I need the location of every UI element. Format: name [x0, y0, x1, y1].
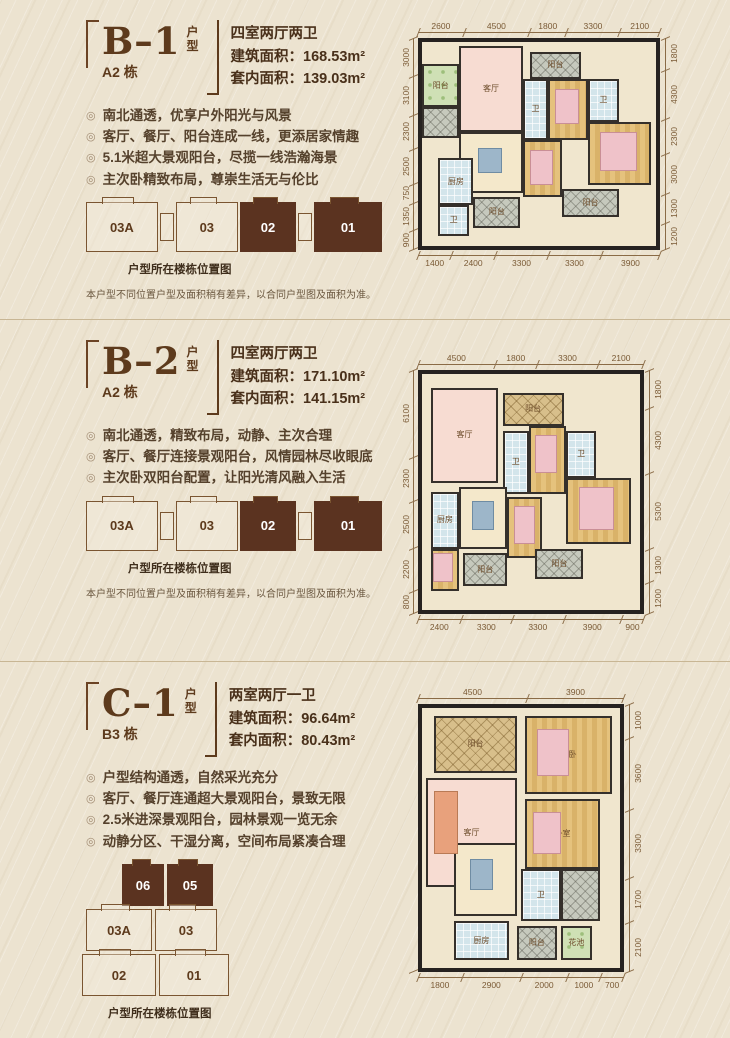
room: [555, 89, 578, 124]
room: 厨房: [454, 921, 509, 960]
unit-block-03: 03: [155, 909, 217, 951]
dimension-value: 3300: [495, 256, 548, 272]
dimension-value: 2900: [462, 978, 521, 994]
dimension-value: 2100: [598, 350, 644, 364]
dimensions-right: 180043002300300013001200: [665, 38, 681, 250]
floor-plan-b2: 客厅阳台卫卧室卫主卧餐厅厨房卧室卧室阳台阳台: [418, 370, 644, 614]
unit-block-02-active: 02: [240, 202, 296, 252]
room-label: 阳台: [467, 740, 483, 748]
building-position-diagram: 06 05 03A 03 02 01: [86, 864, 382, 996]
room: 卫: [521, 869, 561, 921]
title-block: B–2 户 型 A2 栋 四室两厅两卫 建筑面积：171.10m² 套内面积：1…: [86, 340, 382, 415]
dimension-value: 3000: [398, 38, 413, 76]
room-label: 阳台: [477, 566, 493, 574]
ring-bullet-icon: ◎: [86, 792, 96, 806]
diagram-caption: 户型所在楼栋位置图: [128, 560, 382, 576]
ring-bullet-icon: ◎: [86, 130, 96, 144]
dimension-value: 2100: [630, 922, 645, 972]
room-label: 厨房: [473, 937, 489, 945]
dimension-value: 4300: [666, 70, 681, 119]
ring-bullet-icon: ◎: [86, 109, 96, 123]
unit-connector: [298, 213, 312, 241]
dimension-value: 2000: [521, 978, 568, 994]
room: [530, 150, 553, 185]
diagram-caption: 户型所在楼栋位置图: [128, 261, 382, 277]
dimensions-top: 26004500180033002100: [418, 18, 660, 33]
room-label: 卫: [450, 216, 458, 224]
building-label: A2 栋: [102, 62, 199, 82]
room-label: 客厅: [483, 85, 499, 93]
unit-type-suffix: 户 型: [187, 346, 199, 374]
dimension-value: 3900: [564, 620, 621, 636]
floor-plan-area: 45003900 阳台主卧客厅卧室餐厅卫厨房阳台花池 1000360033001…: [382, 684, 644, 1038]
room: 客厅: [459, 46, 522, 132]
unit-type-suffix: 户 型: [185, 688, 197, 716]
title-bracket: C–1 户 型 B3 栋: [86, 682, 213, 752]
built-area: 建筑面积：168.53m²: [231, 46, 366, 68]
dimension-value: 1800: [666, 38, 681, 70]
room-label: 卫: [599, 96, 607, 104]
dimension-value: 2500: [398, 149, 413, 184]
building-label: B3 栋: [102, 724, 197, 744]
room: [579, 487, 614, 529]
dimension-value: 2600: [418, 18, 464, 32]
dimension-value: 2400: [451, 256, 495, 272]
building-position-diagram: 03A 03 02 01: [86, 202, 382, 252]
built-area: 建筑面积：171.10m²: [231, 366, 366, 388]
dimension-value: 3300: [461, 620, 512, 636]
ring-bullet-icon: ◎: [86, 173, 96, 187]
room: 卫: [503, 431, 529, 495]
feature-item: ◎主次卧双阳台配置，让阳光清风融入生活: [86, 469, 382, 486]
feature-item: ◎南北通透，精致布局，动静、主次合理: [86, 427, 382, 444]
ring-bullet-icon: ◎: [86, 835, 96, 849]
dimension-value: 2300: [666, 119, 681, 154]
room-label: 卫: [577, 450, 585, 458]
room-label: 客厅: [463, 829, 479, 837]
dimension-value: 1800: [529, 18, 566, 32]
room-label: 花池: [568, 939, 584, 947]
feature-item: ◎5.1米超大景观阳台，尽揽一线浩瀚海景: [86, 149, 382, 166]
floor-plan-c1: 阳台主卧客厅卧室餐厅卫厨房阳台花池: [418, 704, 624, 972]
room-spec: 四室两厅两卫: [231, 342, 366, 363]
room: [533, 812, 561, 854]
inner-area: 套内面积：139.03m²: [231, 68, 366, 90]
section-c1-info: C–1 户 型 B3 栋 两室两厅一卫 建筑面积：96.64m² 套内面积：80…: [86, 682, 382, 1038]
inner-area: 套内面积：141.15m²: [231, 388, 366, 410]
dimensions-bottom: 14002400330033003900: [418, 255, 660, 272]
dimensions-right: 18004300530013001200: [649, 370, 665, 614]
room: 厨房: [438, 158, 473, 205]
unit-connector: [160, 512, 174, 540]
room: 卫: [566, 431, 597, 478]
dimension-value: 900: [621, 620, 644, 636]
section-b2: B–2 户 型 A2 栋 四室两厅两卫 建筑面积：171.10m² 套内面积：1…: [0, 320, 730, 662]
room-label: 阳台: [547, 61, 563, 69]
dimension-value: 4500: [418, 684, 527, 698]
dimension-value: 750: [398, 184, 413, 203]
unit-block-03a: 03A: [86, 909, 152, 951]
room: [478, 148, 501, 172]
room-label: 阳台: [433, 82, 449, 90]
room: 客厅: [431, 388, 499, 482]
room: 厨房: [431, 492, 459, 549]
room-label: 阳台: [551, 560, 567, 568]
feature-item: ◎南北通透，优享户外阳光与风景: [86, 107, 382, 124]
dimension-value: 4300: [650, 408, 665, 473]
dimension-value: 1200: [650, 582, 665, 614]
room: 阳台: [535, 549, 583, 580]
dimensions-left: 6100230025002200800: [398, 370, 414, 614]
dimensions-top: 4500180033002100: [418, 350, 644, 365]
building-label: A2 栋: [102, 382, 199, 402]
dimension-value: 1000: [630, 704, 645, 738]
feature-item: ◎主次卧精致布局，尊崇生活无与伦比: [86, 171, 382, 188]
room-label: 阳台: [529, 939, 545, 947]
dimension-value: 2100: [619, 18, 660, 32]
feature-item: ◎动静分区、干湿分离，空间布局紧凑合理: [86, 833, 382, 850]
dimension-value: 2300: [398, 115, 413, 149]
room: [434, 791, 458, 853]
room: 阳台: [434, 716, 517, 773]
room-label: 阳台: [525, 405, 541, 413]
dimension-value: 4500: [418, 350, 495, 364]
dimension-value: 1300: [650, 549, 665, 582]
feature-item: ◎客厅、餐厅连接景观阳台，风情园林尽收眼底: [86, 448, 382, 465]
unit-type-suffix: 户 型: [187, 26, 199, 54]
unit-block-01-active: 01: [314, 202, 382, 252]
dimension-value: 3300: [537, 350, 598, 364]
ring-bullet-icon: ◎: [86, 151, 96, 165]
title-bracket: B–2 户 型 A2 栋: [86, 340, 215, 410]
unit-connector: [298, 512, 312, 540]
dimension-value: 3600: [630, 738, 645, 810]
bracket-corner-icon: [86, 682, 99, 730]
building-position-diagram: 03A 03 02 01: [86, 501, 382, 551]
dimension-value: 1000: [567, 978, 600, 994]
title-block: C–1 户 型 B3 栋 两室两厅一卫 建筑面积：96.64m² 套内面积：80…: [86, 682, 382, 757]
dimension-value: 3300: [566, 18, 619, 32]
dimension-value: 700: [600, 978, 624, 994]
dimension-value: 1800: [495, 350, 537, 364]
dimension-value: 2300: [398, 457, 413, 501]
room: [600, 132, 637, 171]
unit-block-06-active: 06: [122, 864, 164, 906]
room: 阳台: [503, 393, 564, 426]
unit-type-title: B–1: [102, 24, 181, 59]
dimensions-left: 30003100230025007501350900: [398, 38, 414, 250]
section-c1: C–1 户 型 B3 栋 两室两厅一卫 建筑面积：96.64m² 套内面积：80…: [0, 662, 730, 1038]
room-label: 厨房: [448, 178, 464, 186]
dimension-value: 1700: [630, 878, 645, 922]
spec-block: 四室两厅两卫 建筑面积：168.53m² 套内面积：139.03m²: [217, 20, 366, 95]
bracket-corner-icon: [86, 340, 99, 388]
room: 卫: [438, 205, 468, 236]
dimension-value: 1350: [398, 203, 413, 231]
room-label: 阳台: [489, 208, 505, 216]
room-label: 客厅: [457, 431, 473, 439]
room: [535, 435, 557, 473]
dimension-value: 2500: [398, 501, 413, 548]
unit-block-01: 01: [159, 954, 229, 996]
bracket-corner-icon: [86, 20, 99, 68]
room-label: 卫: [537, 891, 545, 899]
floor-plan-b1: 阳台客厅阳台卫卧室卫主卧餐厅厨房卫卧室阳台阳台: [418, 38, 660, 250]
unit-block-03a: 03A: [86, 501, 158, 551]
feature-item: ◎户型结构通透，自然采光充分: [86, 769, 382, 786]
section-b2-info: B–2 户 型 A2 栋 四室两厅两卫 建筑面积：171.10m² 套内面积：1…: [86, 340, 382, 661]
room: [472, 501, 494, 529]
unit-block-03a: 03A: [86, 202, 158, 252]
title-bracket: B–1 户 型 A2 栋: [86, 20, 215, 90]
dimensions-bottom: 1800290020001000700: [418, 977, 624, 994]
dimension-value: 6100: [398, 370, 413, 457]
disclaimer-note: 本户型不同位置户型及面积稍有差异，以合同户型图及面积为准。: [86, 286, 382, 301]
room: [561, 869, 601, 921]
room: 花池: [561, 926, 593, 960]
dimensions-bottom: 2400330033003900900: [418, 619, 644, 636]
unit-type-title: B–2: [102, 344, 181, 379]
unit-block-02: 02: [82, 954, 156, 996]
dimension-value: 3900: [601, 256, 660, 272]
feature-list: ◎南北通透，精致布局，动静、主次合理 ◎客厅、餐厅连接景观阳台，风情园林尽收眼底…: [86, 427, 382, 487]
unit-block-03: 03: [176, 202, 238, 252]
position-diagram-block: 03A 03 02 01 户型所在楼栋位置图 本户型不同位置户型及面积稍有差异，…: [86, 501, 382, 600]
dimension-value: 1300: [666, 194, 681, 222]
dimension-value: 800: [398, 591, 413, 614]
dimensions-top: 45003900: [418, 684, 624, 699]
feature-list: ◎户型结构通透，自然采光充分 ◎客厅、餐厅连通超大景观阳台，景致无限 ◎2.5米…: [86, 769, 382, 850]
room: 阳台: [562, 189, 618, 218]
dimension-value: 3300: [512, 620, 563, 636]
dimension-value: 1800: [418, 978, 462, 994]
dimension-value: 2400: [418, 620, 461, 636]
dimension-value: 3900: [527, 684, 624, 698]
floor-plan-area: 4500180033002100 6100230025002200800 客厅阳…: [382, 350, 664, 661]
room: 卫: [588, 79, 618, 122]
room-spec: 两室两厅一卫: [229, 684, 356, 705]
unit-block-01-active: 01: [314, 501, 382, 551]
ring-bullet-icon: ◎: [86, 813, 96, 827]
room: 阳台: [530, 52, 581, 79]
spec-block: 两室两厅一卫 建筑面积：96.64m² 套内面积：80.43m²: [215, 682, 356, 757]
title-block: B–1 户 型 A2 栋 四室两厅两卫 建筑面积：168.53m² 套内面积：1…: [86, 20, 382, 95]
dimension-value: 1400: [418, 256, 451, 272]
built-area: 建筑面积：96.64m²: [229, 708, 356, 730]
unit-connector: [160, 213, 174, 241]
dimension-value: 3000: [666, 154, 681, 194]
inner-area: 套内面积：80.43m²: [229, 730, 356, 752]
room-label: 卫: [531, 105, 539, 113]
spec-block: 四室两厅两卫 建筑面积：171.10m² 套内面积：141.15m²: [217, 340, 366, 415]
dimension-value: 1800: [650, 370, 665, 408]
feature-item: ◎客厅、餐厅、阳台连成一线，更添居家情趣: [86, 128, 382, 145]
room-label: 卫: [512, 458, 520, 466]
dimensions-right: 10003600330017002100: [629, 704, 645, 972]
room: 阳台: [463, 553, 507, 586]
dimension-value: 1200: [666, 223, 681, 250]
dimensions-left-empty: [398, 704, 413, 972]
room: 阳台: [473, 197, 520, 228]
ring-bullet-icon: ◎: [86, 471, 96, 485]
room: 阳台: [517, 926, 557, 960]
room-label: 厨房: [437, 516, 453, 524]
ring-bullet-icon: ◎: [86, 771, 96, 785]
feature-item: ◎2.5米进深景观阳台，园林景观一览无余: [86, 811, 382, 828]
disclaimer-note: 本户型不同位置户型及面积稍有差异，以合同户型图及面积为准。: [86, 585, 382, 600]
section-b1: B–1 户 型 A2 栋 四室两厅两卫 建筑面积：168.53m² 套内面积：1…: [0, 0, 730, 320]
position-diagram-block: 03A 03 02 01 户型所在楼栋位置图 本户型不同位置户型及面积稍有差异，…: [86, 202, 382, 301]
dimension-value: 2200: [398, 548, 413, 591]
room: 卫: [523, 79, 549, 140]
section-b1-info: B–1 户 型 A2 栋 四室两厅两卫 建筑面积：168.53m² 套内面积：1…: [86, 20, 382, 319]
dimension-value: 3100: [398, 76, 413, 115]
room: [470, 859, 494, 890]
unit-block-03: 03: [176, 501, 238, 551]
room-spec: 四室两厅两卫: [231, 22, 366, 43]
room: [433, 553, 453, 581]
unit-type-title: C–1: [102, 686, 179, 721]
room-label: 阳台: [582, 199, 598, 207]
dimension-value: 900: [398, 230, 413, 250]
feature-list: ◎南北通透，优享户外阳光与风景 ◎客厅、餐厅、阳台连成一线，更添居家情趣 ◎5.…: [86, 107, 382, 188]
feature-item: ◎客厅、餐厅连通超大景观阳台，景致无限: [86, 790, 382, 807]
unit-block-05-active: 05: [167, 864, 213, 906]
dimension-value: 4500: [464, 18, 529, 32]
ring-bullet-icon: ◎: [86, 429, 96, 443]
ring-bullet-icon: ◎: [86, 450, 96, 464]
unit-block-02-active: 02: [240, 501, 296, 551]
floor-plan-area: 26004500180033002100 3000310023002500750…: [382, 18, 680, 319]
room: 阳台: [422, 64, 459, 107]
dimension-value: 3300: [630, 810, 645, 878]
room: [537, 729, 569, 776]
room: [514, 506, 536, 544]
diagram-caption: 户型所在楼栋位置图: [108, 1005, 382, 1021]
dimension-value: 3300: [548, 256, 601, 272]
dimension-value: 5300: [650, 473, 665, 549]
room: [422, 107, 459, 138]
position-diagram-block: 06 05 03A 03 02 01 户型所在楼栋位置图: [86, 864, 382, 1021]
